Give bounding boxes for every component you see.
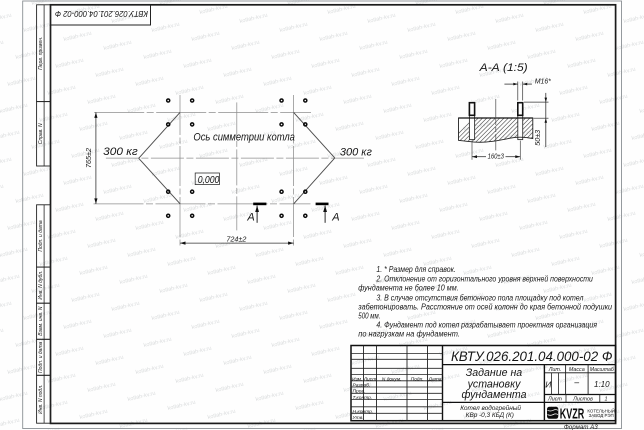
svg-text:kotlah-kv.ru: kotlah-kv.ru: [239, 13, 268, 25]
svg-text:kotlah-kv.ru: kotlah-kv.ru: [231, 184, 260, 196]
svg-text:kotlah-kv.ru: kotlah-kv.ru: [231, 328, 260, 340]
svg-text:kotlah-kv.ru: kotlah-kv.ru: [175, 373, 204, 385]
svg-text:kotlah-kv.ru: kotlah-kv.ru: [87, 238, 116, 250]
svg-text:kotlah-kv.ru: kotlah-kv.ru: [103, 40, 132, 52]
svg-text:kotlah-kv.ru: kotlah-kv.ru: [127, 247, 156, 259]
svg-text:kotlah-kv.ru: kotlah-kv.ru: [95, 67, 124, 79]
svg-text:kotlah-kv.ru: kotlah-kv.ru: [383, 103, 412, 115]
svg-text:kotlah-kv.ru: kotlah-kv.ru: [111, 157, 140, 169]
svg-text:kotlah-kv.ru: kotlah-kv.ru: [303, 373, 332, 385]
svg-text:kotlah-kv.ru: kotlah-kv.ru: [151, 22, 180, 34]
svg-text:kotlah-kv.ru: kotlah-kv.ru: [575, 175, 604, 187]
svg-text:kotlah-kv.ru: kotlah-kv.ru: [0, 157, 12, 169]
svg-text:kotlah-kv.ru: kotlah-kv.ru: [407, 22, 436, 34]
svg-text:Масштаб: Масштаб: [590, 367, 615, 373]
svg-text:kotlah-kv.ru: kotlah-kv.ru: [39, 256, 68, 268]
svg-text:Перв. примен.: Перв. примен.: [38, 37, 44, 70]
svg-text:kotlah-kv.ru: kotlah-kv.ru: [335, 121, 364, 133]
svg-text:kotlah-kv.ru: kotlah-kv.ru: [63, 31, 92, 43]
svg-text:kotlah-kv.ru: kotlah-kv.ru: [111, 301, 140, 313]
svg-text:kotlah-kv.ru: kotlah-kv.ru: [0, 103, 28, 115]
svg-text:kotlah-kv.ru: kotlah-kv.ru: [567, 202, 596, 214]
svg-text:160±3: 160±3: [488, 152, 504, 161]
svg-text:А-А (1:5): А-А (1:5): [479, 62, 528, 74]
svg-text:kotlah-kv.ru: kotlah-kv.ru: [215, 382, 244, 394]
svg-text:kotlah-kv.ru: kotlah-kv.ru: [39, 112, 68, 124]
svg-text:500 мм.: 500 мм.: [358, 311, 380, 320]
svg-text:kotlah-kv.ru: kotlah-kv.ru: [367, 157, 396, 169]
svg-text:kotlah-kv.ru: kotlah-kv.ru: [63, 175, 92, 187]
svg-text:Масса: Масса: [569, 367, 585, 373]
svg-text:kotlah-kv.ru: kotlah-kv.ru: [143, 337, 172, 349]
svg-text:kotlah-kv.ru: kotlah-kv.ru: [135, 364, 164, 376]
svg-text:765±2: 765±2: [84, 148, 93, 168]
svg-text:50±3: 50±3: [533, 130, 542, 146]
svg-text:kotlah-kv.ru: kotlah-kv.ru: [271, 337, 300, 349]
svg-text:kotlah-kv.ru: kotlah-kv.ru: [415, 139, 444, 151]
svg-text:kotlah-kv.ru: kotlah-kv.ru: [127, 103, 156, 115]
svg-text:kotlah-kv.ru: kotlah-kv.ru: [55, 346, 84, 358]
svg-text:Дата: Дата: [428, 376, 442, 382]
svg-text:kotlah-kv.ru: kotlah-kv.ru: [479, 211, 508, 223]
svg-text:kotlah-kv.ru: kotlah-kv.ru: [527, 193, 556, 205]
svg-text:Подп. и дата: Подп. и дата: [38, 220, 44, 252]
svg-text:kotlah-kv.ru: kotlah-kv.ru: [0, 40, 4, 52]
svg-text:3. В случае отсутствия бетонн: 3. В случае отсутствия бетонного пола пл…: [376, 293, 584, 302]
svg-text:КВТУ.026.201.04.000-02 Ф: КВТУ.026.201.04.000-02 Ф: [451, 348, 613, 364]
svg-text:kotlah-kv.ru: kotlah-kv.ru: [231, 40, 260, 52]
svg-text:kotlah-kv.ru: kotlah-kv.ru: [207, 265, 236, 277]
svg-text:kotlah-kv.ru: kotlah-kv.ru: [423, 112, 452, 124]
svg-text:kotlah-kv.ru: kotlah-kv.ru: [255, 103, 284, 115]
svg-text:Подп.: Подп.: [411, 376, 424, 382]
svg-text:kotlah-kv.ru: kotlah-kv.ru: [263, 76, 292, 88]
svg-text:300 кг: 300 кг: [103, 146, 138, 158]
svg-text:kotlah-kv.ru: kotlah-kv.ru: [623, 301, 644, 313]
svg-text:kotlah-kv.ru: kotlah-kv.ru: [159, 283, 188, 295]
svg-text:kotlah-kv.ru: kotlah-kv.ru: [351, 211, 380, 223]
svg-text:kotlah-kv.ru: kotlah-kv.ru: [31, 139, 60, 151]
svg-text:Утв.: Утв.: [353, 415, 364, 421]
svg-text:kotlah-kv.ru: kotlah-kv.ru: [447, 31, 476, 43]
svg-text:kotlah-kv.ru: kotlah-kv.ru: [191, 319, 220, 331]
svg-text:kotlah-kv.ru: kotlah-kv.ru: [447, 175, 476, 187]
svg-text:kotlah-kv.ru: kotlah-kv.ru: [359, 40, 388, 52]
svg-text:300 кг: 300 кг: [340, 146, 373, 158]
svg-text:kotlah-kv.ru: kotlah-kv.ru: [295, 256, 324, 268]
svg-text:kotlah-kv.ru: kotlah-kv.ru: [511, 103, 540, 115]
svg-text:kotlah-kv.ru: kotlah-kv.ru: [87, 94, 116, 106]
svg-text:kotlah-kv.ru: kotlah-kv.ru: [271, 193, 300, 205]
svg-text:kotlah-kv.ru: kotlah-kv.ru: [95, 211, 124, 223]
svg-text:Лит.: Лит.: [548, 367, 562, 373]
svg-text:kotlah-kv.ru: kotlah-kv.ru: [623, 157, 644, 169]
svg-text:kotlah-kv.ru: kotlah-kv.ru: [295, 112, 324, 124]
svg-text:kotlah-kv.ru: kotlah-kv.ru: [631, 274, 644, 286]
svg-text:Листов: Листов: [572, 397, 593, 403]
svg-text:kotlah-kv.ru: kotlah-kv.ru: [0, 274, 20, 286]
svg-text:kotlah-kv.ru: kotlah-kv.ru: [199, 292, 228, 304]
svg-text:kotlah-kv.ru: kotlah-kv.ru: [527, 49, 556, 61]
svg-text:kotlah-kv.ru: kotlah-kv.ru: [631, 130, 644, 142]
svg-text:kotlah-kv.ru: kotlah-kv.ru: [615, 328, 644, 340]
svg-text:kotlah-kv.ru: kotlah-kv.ru: [311, 58, 340, 70]
svg-text:kotlah-kv.ru: kotlah-kv.ru: [639, 103, 644, 115]
svg-text:kotlah-kv.ru: kotlah-kv.ru: [223, 67, 252, 79]
svg-text:kotlah-kv.ru: kotlah-kv.ru: [639, 247, 644, 259]
svg-text:Лист: Лист: [363, 376, 377, 382]
svg-text:kotlah-kv.ru: kotlah-kv.ru: [351, 67, 380, 79]
svg-text:Подп. и дата: Подп. и дата: [38, 341, 44, 373]
svg-text:kotlah-kv.ru: kotlah-kv.ru: [471, 238, 500, 250]
svg-text:–: –: [573, 377, 579, 387]
svg-text:КВр -0,3 КБД (К): КВр -0,3 КБД (К): [466, 412, 514, 419]
svg-text:kotlah-kv.ru: kotlah-kv.ru: [383, 247, 412, 259]
svg-text:kotlah-kv.ru: kotlah-kv.ru: [431, 85, 460, 97]
svg-text:И: И: [545, 380, 552, 390]
svg-text:kotlah-kv.ru: kotlah-kv.ru: [87, 382, 116, 394]
svg-text:по нагрузкам на фундамент.: по нагрузкам на фундамент.: [358, 330, 460, 339]
svg-text:А: А: [331, 212, 339, 224]
svg-text:kotlah-kv.ru: kotlah-kv.ru: [559, 229, 588, 241]
svg-text:kotlah-kv.ru: kotlah-kv.ru: [551, 256, 580, 268]
svg-text:kotlah-kv.ru: kotlah-kv.ru: [495, 13, 524, 25]
svg-text:0,000: 0,000: [198, 175, 220, 186]
svg-text:kotlah-kv.ru: kotlah-kv.ru: [391, 76, 420, 88]
svg-text:Изм.: Изм.: [352, 376, 362, 382]
svg-text:kotlah-kv.ru: kotlah-kv.ru: [343, 94, 372, 106]
svg-text:kotlah-kv.ru: kotlah-kv.ru: [0, 13, 12, 25]
svg-text:kotlah-kv.ru: kotlah-kv.ru: [399, 49, 428, 61]
svg-text:kotlah-kv.ru: kotlah-kv.ru: [287, 283, 316, 295]
svg-text:kotlah-kv.ru: kotlah-kv.ru: [63, 319, 92, 331]
svg-text:Т.контр.: Т.контр.: [353, 395, 373, 401]
svg-text:kotlah-kv.ru: kotlah-kv.ru: [103, 328, 132, 340]
svg-text:kotlah-kv.ru: kotlah-kv.ru: [487, 40, 516, 52]
svg-text:kotlah-kv.ru: kotlah-kv.ru: [143, 193, 172, 205]
svg-text:kotlah-kv.ru: kotlah-kv.ru: [487, 328, 516, 340]
svg-text:kotlah-kv.ru: kotlah-kv.ru: [391, 220, 420, 232]
svg-text:забетонировать. Расстояние от: забетонировать. Расстояние от осей колон…: [357, 302, 612, 311]
svg-text:kotlah-kv.ru: kotlah-kv.ru: [223, 355, 252, 367]
svg-text:kotlah-kv.ru: kotlah-kv.ru: [255, 391, 284, 403]
svg-text:kotlah-kv.ru: kotlah-kv.ru: [71, 292, 100, 304]
svg-text:Разраб.: Разраб.: [353, 382, 371, 388]
svg-text:Н.контр.: Н.контр.: [353, 409, 374, 415]
svg-text:Формат А3: Формат А3: [564, 424, 598, 430]
svg-text:kotlah-kv.ru: kotlah-kv.ru: [175, 85, 204, 97]
svg-text:Взам. инв. N: Взам. инв. N: [38, 306, 44, 336]
svg-text:kotlah-kv.ru: kotlah-kv.ru: [519, 220, 548, 232]
svg-text:kotlah-kv.ru: kotlah-kv.ru: [55, 202, 84, 214]
svg-text:1. * Размер для справок.: 1. * Размер для справок.: [376, 265, 455, 274]
svg-text:kotlah-kv.ru: kotlah-kv.ru: [167, 256, 196, 268]
svg-text:kotlah-kv.ru: kotlah-kv.ru: [567, 58, 596, 70]
svg-text:Пров.: Пров.: [353, 389, 366, 395]
svg-text:kotlah-kv.ru: kotlah-kv.ru: [175, 229, 204, 241]
svg-text:kotlah-kv.ru: kotlah-kv.ru: [399, 193, 428, 205]
svg-text:kotlah-kv.ru: kotlah-kv.ru: [383, 391, 412, 403]
svg-text:kotlah-kv.ru: kotlah-kv.ru: [23, 166, 52, 178]
svg-text:kotlah-kv.ru: kotlah-kv.ru: [303, 85, 332, 97]
svg-text:kotlah-kv.ru: kotlah-kv.ru: [559, 85, 588, 97]
svg-text:kotlah-kv.ru: kotlah-kv.ru: [183, 58, 212, 70]
svg-text:kotlah-kv.ru: kotlah-kv.ru: [127, 391, 156, 403]
svg-text:kotlah-kv.ru: kotlah-kv.ru: [319, 319, 348, 331]
svg-text:kotlah-kv.ru: kotlah-kv.ru: [191, 31, 220, 43]
svg-text:kotlah-kv.ru: kotlah-kv.ru: [255, 247, 284, 259]
svg-text:kotlah-kv.ru: kotlah-kv.ru: [399, 337, 428, 349]
svg-text:Лист: Лист: [547, 397, 562, 403]
svg-text:kotlah-kv.ru: kotlah-kv.ru: [79, 121, 108, 133]
svg-text:kotlah-kv.ru: kotlah-kv.ru: [103, 184, 132, 196]
svg-text:kotlah-kv.ru: kotlah-kv.ru: [335, 265, 364, 277]
svg-text:kotlah-kv.ru: kotlah-kv.ru: [247, 274, 276, 286]
svg-text:kotlah-kv.ru: kotlah-kv.ru: [263, 364, 292, 376]
svg-text:kotlah-kv.ru: kotlah-kv.ru: [455, 148, 484, 160]
svg-text:KVZR: KVZR: [560, 405, 585, 422]
svg-text:kotlah-kv.ru: kotlah-kv.ru: [79, 265, 108, 277]
svg-text:kotlah-kv.ru: kotlah-kv.ru: [623, 13, 644, 25]
svg-text:Ось симметрии котла: Ось симметрии котла: [193, 132, 295, 144]
svg-text:kotlah-kv.ru: kotlah-kv.ru: [47, 229, 76, 241]
svg-text:kotlah-kv.ru: kotlah-kv.ru: [615, 184, 644, 196]
svg-text:Инв. N дубл.: Инв. N дубл.: [38, 271, 44, 300]
svg-text:kotlah-kv.ru: kotlah-kv.ru: [599, 94, 628, 106]
svg-text:kotlah-kv.ru: kotlah-kv.ru: [319, 175, 348, 187]
svg-text:kotlah-kv.ru: kotlah-kv.ru: [0, 247, 28, 259]
svg-text:kotlah-kv.ru: kotlah-kv.ru: [215, 94, 244, 106]
svg-text:kotlah-kv.ru: kotlah-kv.ru: [303, 229, 332, 241]
svg-text:Котел водогрейный: Котел водогрейный: [460, 404, 521, 412]
svg-text:М16*: М16*: [535, 76, 552, 85]
svg-text:фундамента: фундамента: [461, 389, 526, 401]
svg-text:kotlah-kv.ru: kotlah-kv.ru: [407, 166, 436, 178]
svg-text:kotlah-kv.ru: kotlah-kv.ru: [535, 22, 564, 34]
svg-text:kotlah-kv.ru: kotlah-kv.ru: [327, 292, 356, 304]
svg-text:kotlah-kv.ru: kotlah-kv.ru: [159, 139, 188, 151]
svg-text:kotlah-kv.ru: kotlah-kv.ru: [439, 202, 468, 214]
svg-text:kotlah-kv.ru: kotlah-kv.ru: [343, 238, 372, 250]
svg-text:kotlah-kv.ru: kotlah-kv.ru: [55, 58, 84, 70]
svg-text:kotlah-kv.ru: kotlah-kv.ru: [439, 58, 468, 70]
svg-text:kotlah-kv.ru: kotlah-kv.ru: [271, 49, 300, 61]
svg-text:kotlah-kv.ru: kotlah-kv.ru: [119, 130, 148, 142]
svg-text:kotlah-kv.ru: kotlah-kv.ru: [375, 130, 404, 142]
svg-text:kotlah-kv.ru: kotlah-kv.ru: [535, 166, 564, 178]
svg-text:kotlah-kv.ru: kotlah-kv.ru: [431, 229, 460, 241]
svg-text:kotlah-kv.ru: kotlah-kv.ru: [263, 220, 292, 232]
svg-text:kotlah-kv.ru: kotlah-kv.ru: [167, 400, 196, 412]
svg-text:kotlah-kv.ru: kotlah-kv.ru: [575, 31, 604, 43]
svg-text:kotlah-kv.ru: kotlah-kv.ru: [295, 400, 324, 412]
svg-text:фундамента не более 10 мм.: фундамента не более 10 мм.: [358, 284, 458, 293]
svg-text:kotlah-kv.ru: kotlah-kv.ru: [239, 301, 268, 313]
svg-text:kotlah-kv.ru: kotlah-kv.ru: [135, 76, 164, 88]
svg-text:kotlah-kv.ru: kotlah-kv.ru: [7, 76, 36, 88]
svg-text:kotlah-kv.ru: kotlah-kv.ru: [311, 346, 340, 358]
svg-text:4. Фундамент под котел разраб: 4. Фундамент под котел разрабатывает про…: [376, 321, 597, 330]
svg-text:N докум.: N докум.: [382, 376, 402, 382]
svg-text:kotlah-kv.ru: kotlah-kv.ru: [511, 247, 540, 259]
svg-text:kotlah-kv.ru: kotlah-kv.ru: [359, 184, 388, 196]
svg-text:kotlah-kv.ru: kotlah-kv.ru: [143, 49, 172, 61]
svg-text:kotlah-kv.ru: kotlah-kv.ru: [0, 328, 4, 340]
svg-text:Справ. N: Справ. N: [38, 123, 44, 144]
svg-text:КВТУ.026.201.04.000-02 Ф: КВТУ.026.201.04.000-02 Ф: [55, 9, 148, 19]
svg-text:kotlah-kv.ru: kotlah-kv.ru: [367, 13, 396, 25]
svg-text:kotlah-kv.ru: kotlah-kv.ru: [15, 193, 44, 205]
svg-text:А: А: [246, 212, 254, 224]
svg-text:1: 1: [605, 397, 608, 403]
svg-text:kotlah-kv.ru: kotlah-kv.ru: [47, 85, 76, 97]
svg-text:kotlah-kv.ru: kotlah-kv.ru: [0, 184, 4, 196]
svg-text:ЗАВОД РЭП: ЗАВОД РЭП: [589, 413, 614, 418]
svg-text:kotlah-kv.ru: kotlah-kv.ru: [23, 22, 52, 34]
svg-text:kotlah-kv.ru: kotlah-kv.ru: [319, 31, 348, 43]
svg-text:kotlah-kv.ru: kotlah-kv.ru: [279, 22, 308, 34]
svg-text:kotlah-kv.ru: kotlah-kv.ru: [239, 157, 268, 169]
svg-text:kotlah-kv.ru: kotlah-kv.ru: [119, 274, 148, 286]
svg-text:kotlah-kv.ru: kotlah-kv.ru: [583, 148, 612, 160]
svg-text:Задание на: Задание на: [466, 367, 523, 379]
svg-text:kotlah-kv.ru: kotlah-kv.ru: [551, 112, 580, 124]
svg-text:kotlah-kv.ru: kotlah-kv.ru: [135, 220, 164, 232]
svg-text:1:10: 1:10: [594, 380, 610, 389]
svg-text:kotlah-kv.ru: kotlah-kv.ru: [0, 130, 20, 142]
svg-text:kotlah-kv.ru: kotlah-kv.ru: [151, 310, 180, 322]
svg-text:kotlah-kv.ru: kotlah-kv.ru: [207, 409, 236, 421]
svg-text:kotlah-kv.ru: kotlah-kv.ru: [543, 139, 572, 151]
svg-text:kotlah-kv.ru: kotlah-kv.ru: [183, 346, 212, 358]
svg-text:kotlah-kv.ru: kotlah-kv.ru: [0, 391, 28, 403]
svg-text:kotlah-kv.ru: kotlah-kv.ru: [487, 184, 516, 196]
svg-text:kotlah-kv.ru: kotlah-kv.ru: [0, 418, 20, 430]
svg-text:Инв. N подл.: Инв. N подл.: [38, 385, 44, 414]
svg-text:kotlah-kv.ru: kotlah-kv.ru: [7, 364, 36, 376]
svg-text:kotlah-kv.ru: kotlah-kv.ru: [79, 409, 108, 421]
svg-text:kotlah-kv.ru: kotlah-kv.ru: [599, 238, 628, 250]
svg-text:kotlah-kv.ru: kotlah-kv.ru: [279, 310, 308, 322]
svg-text:2. Отклонение от горизонтальн: 2. Отклонение от горизонтального уровня …: [376, 274, 594, 283]
svg-text:kotlah-kv.ru: kotlah-kv.ru: [47, 373, 76, 385]
svg-text:kotlah-kv.ru: kotlah-kv.ru: [0, 301, 12, 313]
svg-text:kotlah-kv.ru: kotlah-kv.ru: [7, 220, 36, 232]
svg-text:724±2: 724±2: [226, 235, 246, 244]
svg-text:kotlah-kv.ru: kotlah-kv.ru: [95, 355, 124, 367]
svg-text:kotlah-kv.ru: kotlah-kv.ru: [615, 40, 644, 52]
svg-text:kotlah-kv.ru: kotlah-kv.ru: [351, 355, 380, 367]
svg-text:kotlah-kv.ru: kotlah-kv.ru: [31, 283, 60, 295]
